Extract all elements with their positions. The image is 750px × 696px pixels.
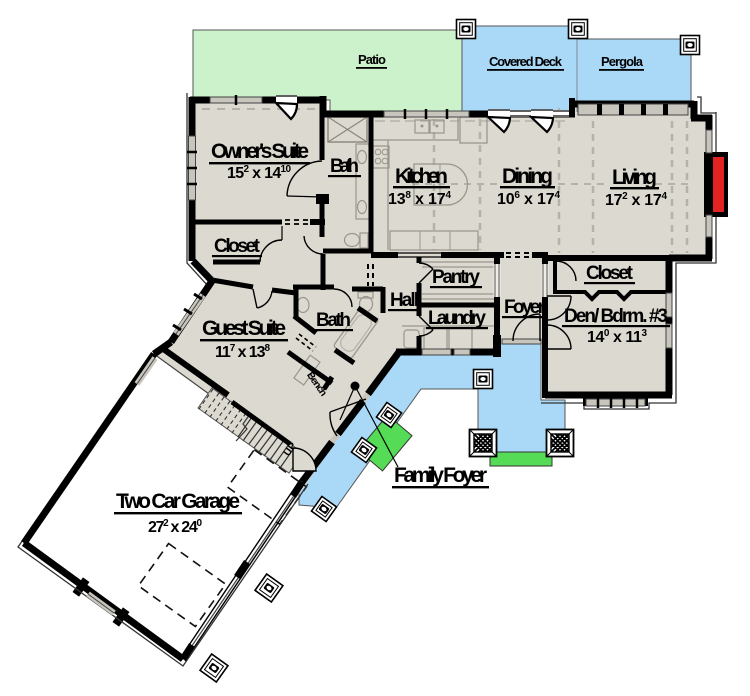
svg-text:172 x 174: 172 x 174 [605,191,667,209]
svg-text:Covered Deck: Covered Deck [489,54,563,69]
svg-text:Pantry: Pantry [432,267,480,288]
svg-text:272 x 240: 272 x 240 [148,518,202,536]
svg-text:Two Car Garage: Two Car Garage [116,490,240,513]
svg-text:Den/ Bdrm. #3: Den/ Bdrm. #3 [564,306,668,327]
svg-text:Kitchen: Kitchen [395,165,448,188]
svg-text:Guest Suite: Guest Suite [202,317,286,340]
svg-text:Closet: Closet [586,263,634,284]
svg-text:Bath: Bath [330,156,359,177]
svg-text:Living: Living [612,166,657,189]
svg-text:Family Foyer: Family Foyer [394,464,487,487]
svg-text:Closet: Closet [214,236,261,257]
svg-text:Dining: Dining [502,165,553,188]
svg-text:106 x 174: 106 x 174 [497,190,560,208]
svg-text:Bath: Bath [316,310,351,331]
svg-text:Owner's Suite: Owner's Suite [211,140,309,163]
svg-text:Hall: Hall [390,290,419,311]
svg-text:Pergola: Pergola [601,54,644,69]
svg-text:138 x 174: 138 x 174 [388,190,451,208]
svg-text:117 x 138: 117 x 138 [215,343,270,361]
svg-text:Laundry: Laundry [428,308,486,329]
svg-text:Foyer: Foyer [504,297,546,318]
svg-text:Patio: Patio [358,52,386,67]
svg-text:140 x 113: 140 x 113 [587,328,647,346]
